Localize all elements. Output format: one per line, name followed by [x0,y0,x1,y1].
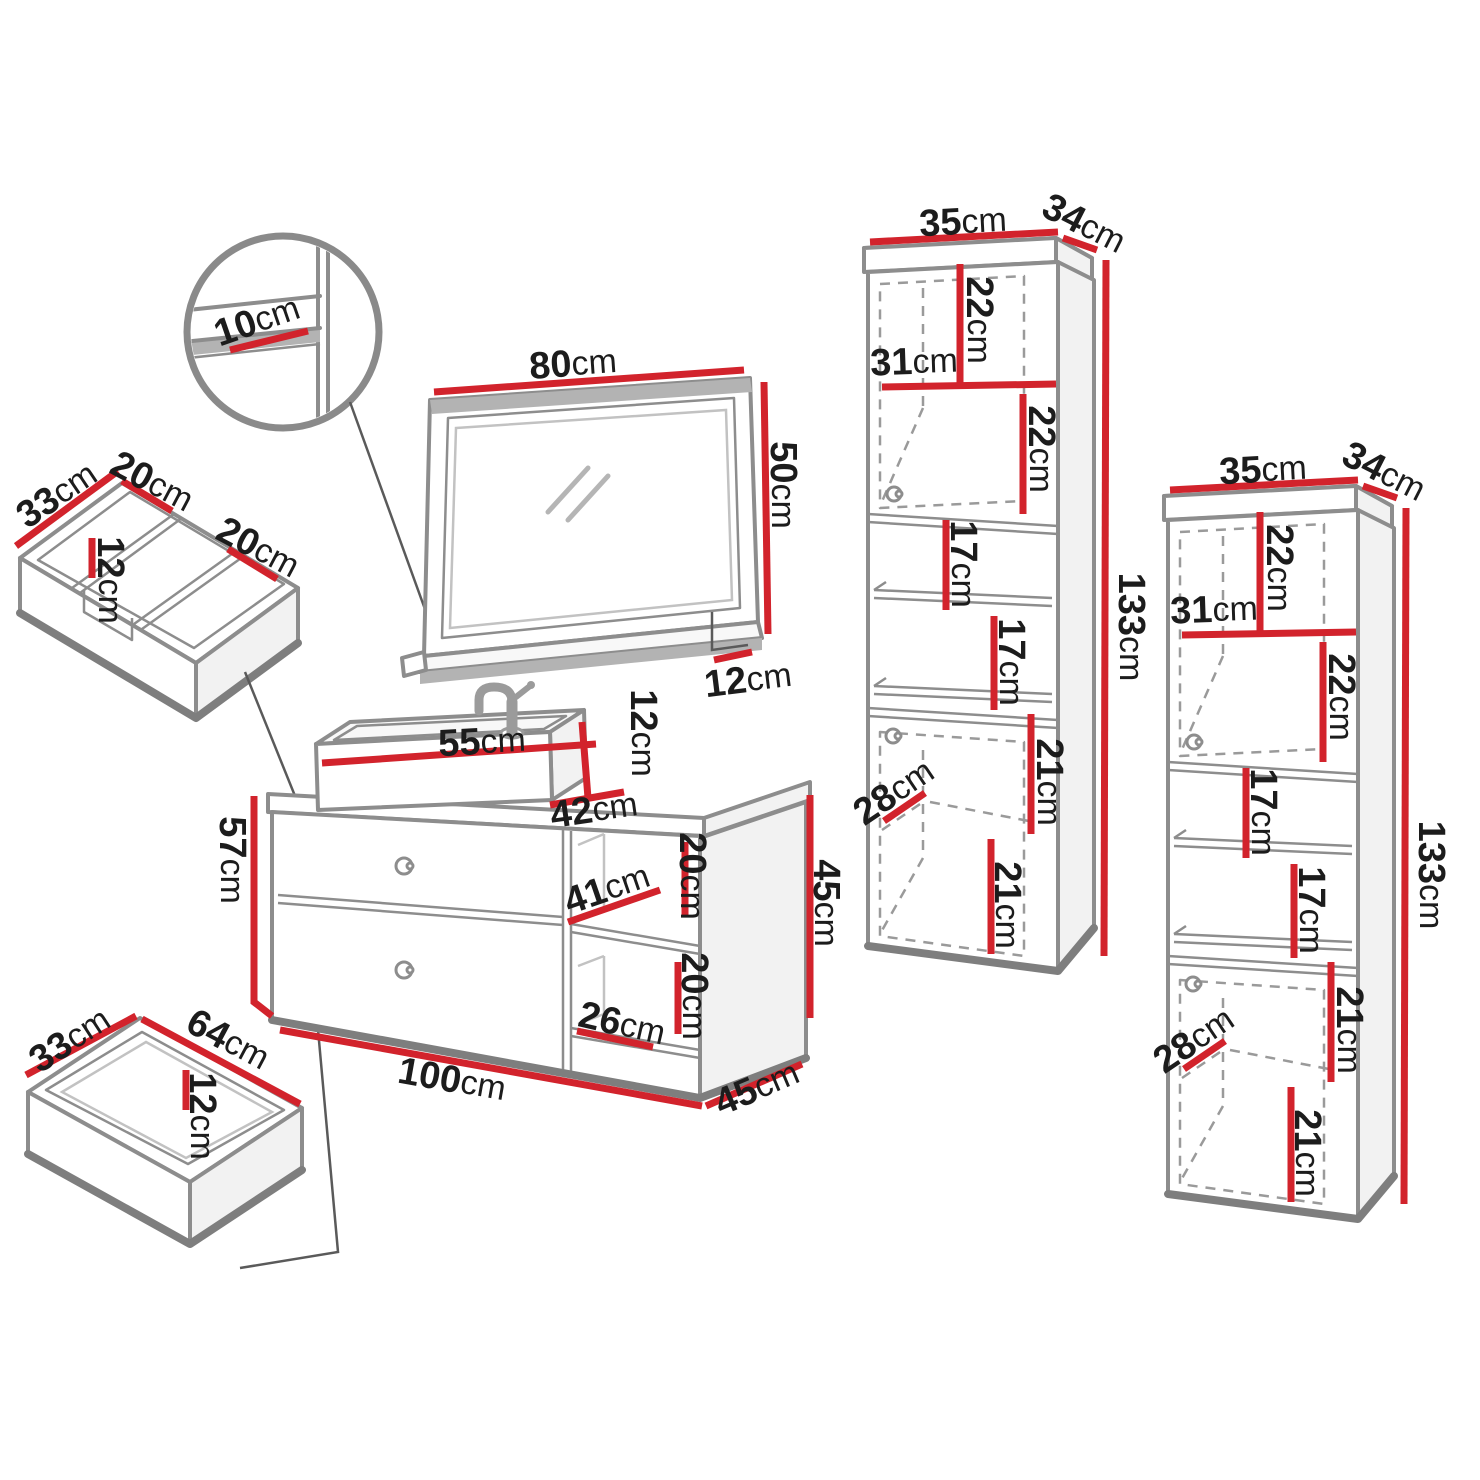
drawer-organizer-drawing: 33cm 20cm 12cm 20cm [9,443,307,718]
vanity-drawing: 55cm 12cm 42cm 57cm 100cm 45cm 45cm 20cm… [211,681,847,1124]
tall-cabinet-1-drawing: 35cm 34cm 22cm 31cm 22cm 17cm 17cm 21cm … [846,185,1152,971]
dimension-label-sink-height: 12cm [622,689,664,777]
dimension-label-vanity-height-left: 57cm [211,816,253,904]
dimension-label-cabinet2-width: 35cm [1218,447,1308,494]
vanity-side [700,802,806,1098]
mirror-drawing: 80cm 50cm 12cm [402,340,804,706]
dimension-line-sink-height [582,722,588,798]
dimension-label-cabinet1-mid-shelf-1: 17cm [942,520,984,608]
dimension-label-cabinet2-second-section: 22cm [1320,653,1362,741]
dimension-label-niche-bottom-height: 20cm [673,952,715,1040]
dimension-label-cabinet1-second-section: 22cm [1020,405,1062,493]
dimension-label-cabinet1-width: 35cm [918,199,1008,246]
dimension-label-cabinet2-mid-shelf-1: 17cm [1242,768,1284,856]
dimension-label-cabinet1-height: 133cm [1110,573,1152,682]
dimension-label-vanity-height-right: 45cm [805,859,847,947]
dimension-line-vanity-height-left [254,796,272,1016]
furniture-dimension-diagram-page: 10cm 80cm 50cm 12cm 33cm [0,0,1480,1480]
dimension-label-cabinet1-mid-shelf-2: 17cm [990,618,1032,706]
dimension-label-cabinet2-shelf-width: 31cm [1169,587,1258,632]
dimension-label-mirror-width: 80cm [528,340,618,388]
drawer-box-drawing: 33cm 64cm 12cm [22,999,302,1244]
dimension-label-cabinet1-top-section: 22cm [958,276,1000,364]
detail-callout-line [350,402,426,612]
dimension-label-cabinet2-lower-top: 21cm [1328,986,1370,1074]
dimension-label-cabinet1-shelf-width: 31cm [869,339,958,384]
dimension-label-mirror-height: 50cm [762,441,804,529]
dimension-label-cabinet1-lower-top: 21cm [1028,738,1070,826]
dimension-label-organizer-height: 12cm [89,536,131,624]
dimension-label-drawer-height: 12cm [181,1072,223,1160]
dimension-label-cabinet2-top-section: 22cm [1258,524,1300,612]
tall-cabinet-2-drawing: 35cm 34cm 22cm 31cm 22cm 17cm 17cm 21cm … [1146,433,1452,1219]
dimension-label-cabinet2-mid-shelf-2: 17cm [1290,866,1332,954]
dimension-label-sink-width: 55cm [437,719,527,766]
furniture-dimension-diagram: 10cm 80cm 50cm 12cm 33cm [0,0,1480,1480]
dimension-label-niche-top-height: 20cm [671,832,713,920]
dimension-label-cabinet1-lower-bottom: 21cm [986,861,1028,949]
dimension-label-cabinet2-lower-bottom: 21cm [1286,1109,1328,1197]
dimension-label-cabinet2-height: 133cm [1410,821,1452,930]
